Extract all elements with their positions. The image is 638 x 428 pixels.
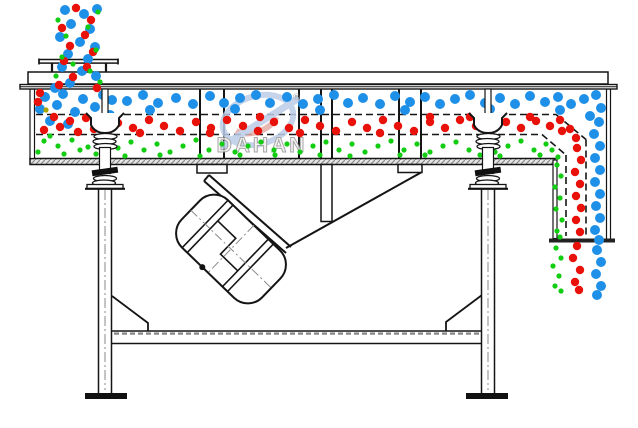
particle-fine_green bbox=[53, 73, 58, 78]
particle-fine_green bbox=[93, 151, 98, 156]
particle-coarse_blue bbox=[400, 105, 410, 115]
particle-medium_red bbox=[301, 116, 309, 124]
vibration-motor bbox=[166, 186, 294, 313]
particle-medium_red bbox=[87, 16, 95, 24]
particle-coarse_blue bbox=[596, 103, 606, 113]
particle-fine_green bbox=[272, 152, 277, 157]
particle-fine_green bbox=[157, 152, 162, 157]
particle-coarse_blue bbox=[145, 105, 155, 115]
particle-fine_green bbox=[97, 79, 102, 84]
particle-fine_green bbox=[375, 143, 380, 148]
particle-medium_red bbox=[526, 113, 534, 121]
particle-medium_red bbox=[410, 127, 418, 135]
particle-medium_red bbox=[81, 31, 89, 39]
particle-medium_red bbox=[136, 129, 144, 137]
particle-medium_red bbox=[363, 124, 371, 132]
inlet-flange bbox=[39, 60, 118, 64]
particle-coarse_blue bbox=[540, 97, 550, 107]
particle-coarse_blue bbox=[315, 105, 325, 115]
particle-fine_green bbox=[414, 141, 419, 146]
particle-fine_green bbox=[401, 147, 406, 152]
particle-fine_green bbox=[55, 143, 60, 148]
particle-fine_green bbox=[477, 152, 482, 157]
particle-fine_green bbox=[558, 255, 563, 260]
spring-assembly-right bbox=[468, 89, 508, 189]
particle-medium_red bbox=[270, 118, 278, 126]
particle-fine_green bbox=[154, 141, 159, 146]
particle-fine_green bbox=[549, 147, 554, 152]
particle-medium_red bbox=[571, 168, 579, 176]
box-left-wall bbox=[30, 89, 35, 159]
particle-fine_green bbox=[466, 147, 471, 152]
particle-fine_green bbox=[258, 139, 263, 144]
particle-fine_green bbox=[232, 149, 237, 154]
particle-fine_green bbox=[87, 68, 92, 73]
particle-medium_red bbox=[566, 125, 574, 133]
particle-medium_red bbox=[69, 73, 77, 81]
chute-left-wall bbox=[553, 160, 557, 239]
particle-coarse_blue bbox=[553, 92, 563, 102]
particle-coarse_blue bbox=[230, 104, 240, 114]
particle-fine_green bbox=[558, 288, 563, 293]
particle-fine_green bbox=[41, 138, 46, 143]
particle-fine_green bbox=[440, 143, 445, 148]
particle-medium_red bbox=[577, 204, 585, 212]
particle-fine_green bbox=[317, 152, 322, 157]
particle-medium_red bbox=[502, 118, 510, 126]
particle-medium_red bbox=[285, 124, 293, 132]
particle-medium_red bbox=[573, 144, 581, 152]
particle-medium_red bbox=[376, 129, 384, 137]
particle-coarse_blue bbox=[595, 141, 605, 151]
particle-medium_red bbox=[576, 266, 584, 274]
particle-coarse_blue bbox=[90, 102, 100, 112]
particle-medium_red bbox=[40, 126, 48, 134]
particle-medium_red bbox=[517, 124, 525, 132]
particle-coarse_blue bbox=[591, 201, 601, 211]
particle-medium_red bbox=[55, 81, 63, 89]
particle-fine_green bbox=[556, 273, 561, 278]
particle-coarse_blue bbox=[590, 153, 600, 163]
particle-medium_red bbox=[316, 122, 324, 130]
particle-coarse_blue bbox=[590, 225, 600, 235]
particle-coarse_blue bbox=[282, 92, 292, 102]
particle-medium_red bbox=[575, 286, 583, 294]
particle-fine_green bbox=[336, 147, 341, 152]
particle-medium_red bbox=[145, 116, 153, 124]
particle-fine_green bbox=[70, 61, 75, 66]
machine-diagram: DAHAN ® bbox=[0, 0, 638, 428]
particle-medium_red bbox=[332, 127, 340, 135]
particle-fine_green bbox=[206, 147, 211, 152]
particle-fine_green bbox=[245, 143, 250, 148]
particle-medium_red bbox=[254, 127, 262, 135]
particle-fine_green bbox=[537, 152, 542, 157]
screen-deck-1 bbox=[36, 115, 586, 237]
particle-fine_green bbox=[85, 24, 90, 29]
particle-coarse_blue bbox=[313, 94, 323, 104]
particle-coarse_blue bbox=[358, 93, 368, 103]
brace-left bbox=[112, 296, 148, 331]
particle-fine_green bbox=[559, 217, 564, 222]
particle-fine_green bbox=[55, 17, 60, 22]
particle-medium_red bbox=[379, 116, 387, 124]
particle-medium_red bbox=[296, 129, 304, 137]
particle-medium_red bbox=[223, 116, 231, 124]
particle-fine_green bbox=[554, 228, 559, 233]
particle-fine_green bbox=[197, 153, 202, 158]
particle-coarse_blue bbox=[60, 5, 70, 15]
particle-fine_green bbox=[122, 153, 127, 158]
particle-medium_red bbox=[577, 156, 585, 164]
particle-medium_red bbox=[66, 42, 74, 50]
particle-fine_green bbox=[554, 162, 559, 167]
particle-coarse_blue bbox=[592, 290, 602, 300]
particle-medium_red bbox=[572, 192, 580, 200]
particle-medium_red bbox=[256, 113, 264, 121]
particle-coarse_blue bbox=[205, 91, 215, 101]
registered-mark: ® bbox=[293, 92, 300, 102]
particle-fine_green bbox=[271, 147, 276, 152]
particle-medium_red bbox=[176, 127, 184, 135]
particle-medium_red bbox=[456, 116, 464, 124]
particle-medium_red bbox=[129, 124, 137, 132]
particle-fine_green bbox=[180, 143, 185, 148]
particle-fine_green bbox=[557, 195, 562, 200]
hanger-strap-middle bbox=[321, 165, 332, 222]
base-frame bbox=[85, 186, 508, 399]
particle-medium_red bbox=[394, 122, 402, 130]
particle-coarse_blue bbox=[594, 117, 604, 127]
particle-coarse_blue bbox=[594, 235, 604, 245]
particle-coarse_blue bbox=[375, 99, 385, 109]
particle-coarse_blue bbox=[79, 9, 89, 19]
particle-coarse_blue bbox=[171, 93, 181, 103]
particle-coarse_blue bbox=[595, 165, 605, 175]
particle-fine_green bbox=[552, 283, 557, 288]
particle-fine_green bbox=[553, 245, 558, 250]
particle-fine_green bbox=[505, 143, 510, 148]
particle-fine_green bbox=[553, 206, 558, 211]
particle-fine_green bbox=[284, 141, 289, 146]
particle-coarse_blue bbox=[566, 99, 576, 109]
particle-fine_green bbox=[349, 141, 354, 146]
particle-fine_green bbox=[61, 151, 66, 156]
particle-medium_red bbox=[192, 118, 200, 126]
brand-text: DAHAN bbox=[217, 134, 308, 157]
particle-fine_green bbox=[167, 149, 172, 154]
particle-coarse_blue bbox=[138, 90, 148, 100]
particle-dots-layer bbox=[34, 4, 606, 300]
particle-medium_red bbox=[546, 122, 554, 130]
particle-coarse_blue bbox=[265, 98, 275, 108]
particle-coarse_blue bbox=[58, 89, 68, 99]
particle-coarse_blue bbox=[235, 93, 245, 103]
particle-fine_green bbox=[59, 54, 64, 59]
particle-coarse_blue bbox=[450, 94, 460, 104]
particle-coarse_blue bbox=[70, 107, 80, 117]
particle-medium_red bbox=[571, 278, 579, 286]
particle-medium_red bbox=[58, 24, 66, 32]
particle-coarse_blue bbox=[595, 213, 605, 223]
particle-fine_green bbox=[388, 138, 393, 143]
particle-coarse_blue bbox=[525, 91, 535, 101]
particle-coarse_blue bbox=[495, 93, 505, 103]
particle-coarse_blue bbox=[555, 105, 565, 115]
particle-fine_green bbox=[531, 147, 536, 152]
particle-fine_green bbox=[219, 141, 224, 146]
particle-coarse_blue bbox=[596, 257, 606, 267]
particle-medium_red bbox=[239, 122, 247, 130]
particle-medium_red bbox=[74, 128, 82, 136]
particle-coarse_blue bbox=[510, 99, 520, 109]
hanger-stub-left bbox=[197, 165, 227, 174]
particle-fine_green bbox=[47, 133, 52, 138]
particle-fine_green bbox=[95, 9, 100, 14]
particle-fine_green bbox=[323, 139, 328, 144]
particle-fine_green bbox=[557, 234, 562, 239]
particle-medium_red bbox=[441, 124, 449, 132]
particle-coarse_blue bbox=[78, 94, 88, 104]
particle-medium_red bbox=[348, 118, 356, 126]
cover-plate bbox=[28, 72, 608, 84]
particle-fine_green bbox=[310, 143, 315, 148]
particle-coarse_blue bbox=[590, 177, 600, 187]
particle-coarse_blue bbox=[592, 245, 602, 255]
particle-coarse_blue bbox=[420, 92, 430, 102]
particle-fine_green bbox=[453, 139, 458, 144]
particle-fine_green bbox=[427, 149, 432, 154]
particle-fine_green bbox=[362, 149, 367, 154]
particle-medium_red bbox=[66, 117, 74, 125]
particle-fine_green bbox=[63, 33, 68, 38]
particle-fine_green bbox=[141, 147, 146, 152]
particle-medium_red bbox=[569, 254, 577, 262]
particle-stray_olive bbox=[43, 107, 48, 112]
particle-coarse_blue bbox=[219, 98, 229, 108]
particle-medium_red bbox=[556, 116, 564, 124]
particle-coarse_blue bbox=[591, 269, 601, 279]
particle-fine_green bbox=[397, 152, 402, 157]
particle-fine_green bbox=[193, 137, 198, 142]
particle-fine_green bbox=[558, 173, 563, 178]
box-right-wall bbox=[607, 89, 611, 241]
particle-coarse_blue bbox=[390, 91, 400, 101]
particle-coarse_blue bbox=[465, 90, 475, 100]
particle-medium_red bbox=[56, 123, 64, 131]
particle-fine_green bbox=[552, 184, 557, 189]
particle-medium_red bbox=[160, 122, 168, 130]
particle-medium_red bbox=[576, 228, 584, 236]
particle-fine_green bbox=[237, 152, 242, 157]
particle-fine_green bbox=[297, 149, 302, 154]
foot-pad-left bbox=[85, 393, 127, 399]
particle-fine_green bbox=[77, 147, 82, 152]
particle-medium_red bbox=[572, 134, 580, 142]
particle-coarse_blue bbox=[153, 98, 163, 108]
particle-medium_red bbox=[93, 84, 101, 92]
particle-fine_green bbox=[69, 137, 74, 142]
particle-medium_red bbox=[72, 4, 80, 12]
particle-coarse_blue bbox=[596, 281, 606, 291]
particle-coarse_blue bbox=[52, 100, 62, 110]
particle-medium_red bbox=[558, 127, 566, 135]
particle-coarse_blue bbox=[329, 90, 339, 100]
spring-assembly-left bbox=[85, 89, 125, 189]
cross-beam bbox=[103, 331, 490, 344]
particle-fine_green bbox=[550, 263, 555, 268]
vibrating-screen-diagram: DAHAN ® bbox=[0, 0, 638, 428]
particle-coarse_blue bbox=[343, 98, 353, 108]
particle-fine_green bbox=[128, 139, 133, 144]
particle-coarse_blue bbox=[435, 99, 445, 109]
particle-fine_green bbox=[85, 144, 90, 149]
particle-medium_red bbox=[206, 129, 214, 137]
particle-fine_green bbox=[497, 153, 502, 158]
particle-coarse_blue bbox=[579, 94, 589, 104]
particle-coarse_blue bbox=[591, 90, 601, 100]
particle-medium_red bbox=[572, 216, 580, 224]
particle-fine_green bbox=[555, 154, 560, 159]
particle-coarse_blue bbox=[66, 19, 76, 29]
particle-coarse_blue bbox=[589, 129, 599, 139]
particle-fine_green bbox=[347, 153, 352, 158]
particle-fine_green bbox=[35, 149, 40, 154]
brace-right bbox=[446, 295, 482, 331]
hanger-stub-right bbox=[398, 165, 422, 173]
bracket-diagonal-right bbox=[286, 173, 421, 249]
particle-coarse_blue bbox=[595, 189, 605, 199]
particle-fine_green bbox=[518, 138, 523, 143]
particle-coarse_blue bbox=[188, 99, 198, 109]
foot-pad-right bbox=[466, 393, 508, 399]
particle-coarse_blue bbox=[251, 90, 261, 100]
particle-medium_red bbox=[426, 113, 434, 121]
particle-fine_green bbox=[422, 152, 427, 157]
particle-medium_red bbox=[36, 89, 44, 97]
particle-coarse_blue bbox=[55, 32, 65, 42]
particle-fine_green bbox=[93, 47, 98, 52]
spring-cup-right bbox=[469, 113, 507, 133]
particle-coarse_blue bbox=[122, 96, 132, 106]
particle-coarse_blue bbox=[585, 111, 595, 121]
particle-coarse_blue bbox=[298, 99, 308, 109]
particle-medium_red bbox=[34, 98, 42, 106]
particle-medium_red bbox=[50, 113, 58, 121]
particle-fine_green bbox=[543, 141, 548, 146]
particle-medium_red bbox=[573, 242, 581, 250]
particle-medium_red bbox=[576, 180, 584, 188]
